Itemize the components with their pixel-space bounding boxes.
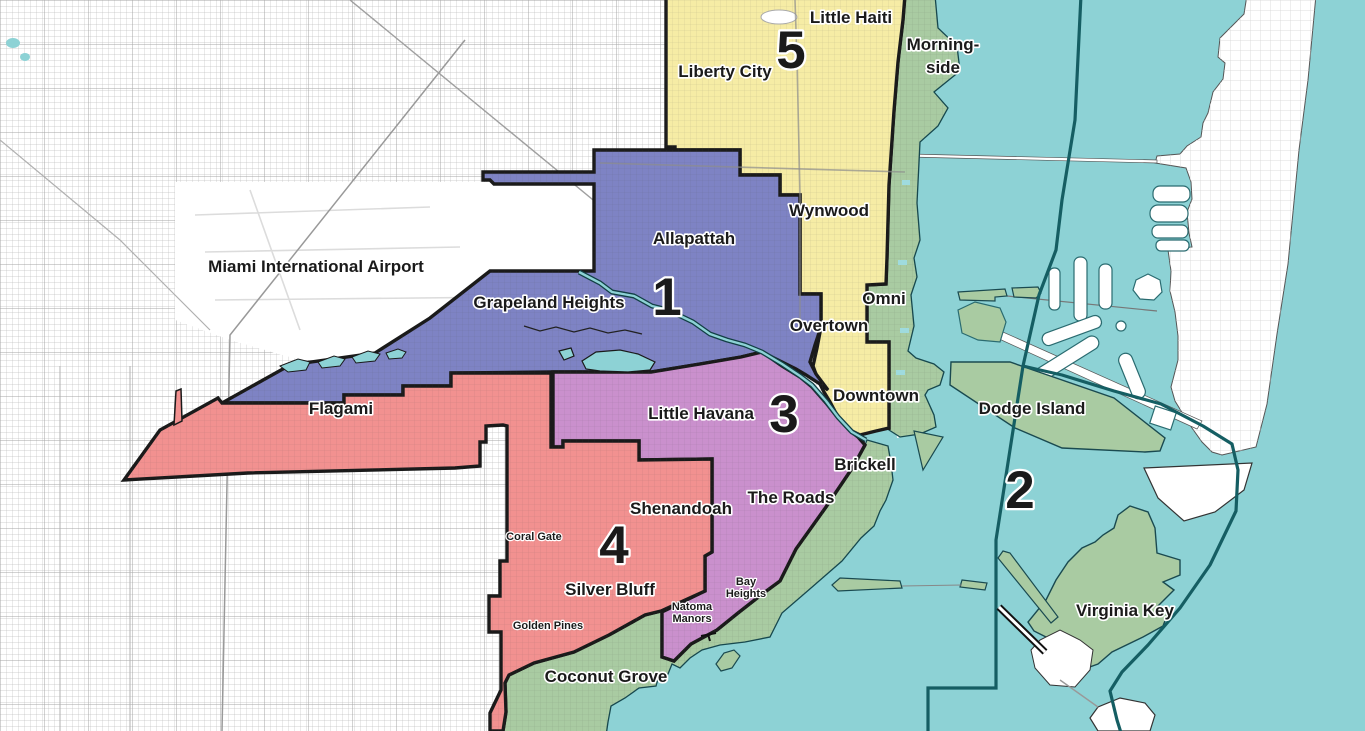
svg-text:Golden Pines: Golden Pines xyxy=(513,620,583,632)
svg-text:side: side xyxy=(926,58,960,77)
svg-text:Morning-: Morning- xyxy=(907,35,980,54)
svg-text:Bay: Bay xyxy=(736,576,757,588)
svg-text:4: 4 xyxy=(599,516,629,575)
svg-text:Omni: Omni xyxy=(862,289,905,308)
svg-text:2: 2 xyxy=(1005,461,1034,520)
svg-text:Little Havana: Little Havana xyxy=(648,404,754,423)
svg-text:Little Haiti: Little Haiti xyxy=(810,8,892,27)
svg-text:Miami International Airport: Miami International Airport xyxy=(208,257,424,276)
svg-text:Virginia Key: Virginia Key xyxy=(1076,601,1174,620)
svg-text:Shenandoah: Shenandoah xyxy=(630,499,732,518)
svg-text:Flagami: Flagami xyxy=(309,399,373,418)
svg-text:Liberty City: Liberty City xyxy=(678,62,772,81)
svg-text:Coconut Grove: Coconut Grove xyxy=(545,667,668,686)
svg-text:Grapeland Heights: Grapeland Heights xyxy=(473,293,624,312)
svg-text:Heights: Heights xyxy=(726,588,766,600)
svg-text:The Roads: The Roads xyxy=(748,488,835,507)
svg-text:Overtown: Overtown xyxy=(790,316,868,335)
svg-text:Allapattah: Allapattah xyxy=(653,229,735,248)
svg-text:Wynwood: Wynwood xyxy=(789,201,869,220)
svg-text:Dodge Island: Dodge Island xyxy=(979,399,1086,418)
svg-text:Coral Gate: Coral Gate xyxy=(506,531,562,543)
svg-text:3: 3 xyxy=(769,385,798,444)
svg-text:Manors: Manors xyxy=(672,613,711,625)
svg-text:Brickell: Brickell xyxy=(834,455,895,474)
svg-text:5: 5 xyxy=(776,21,805,80)
svg-text:1: 1 xyxy=(652,268,681,327)
svg-text:Silver Bluff: Silver Bluff xyxy=(565,580,655,599)
svg-text:Natoma: Natoma xyxy=(672,601,713,613)
svg-text:Downtown: Downtown xyxy=(833,386,919,405)
